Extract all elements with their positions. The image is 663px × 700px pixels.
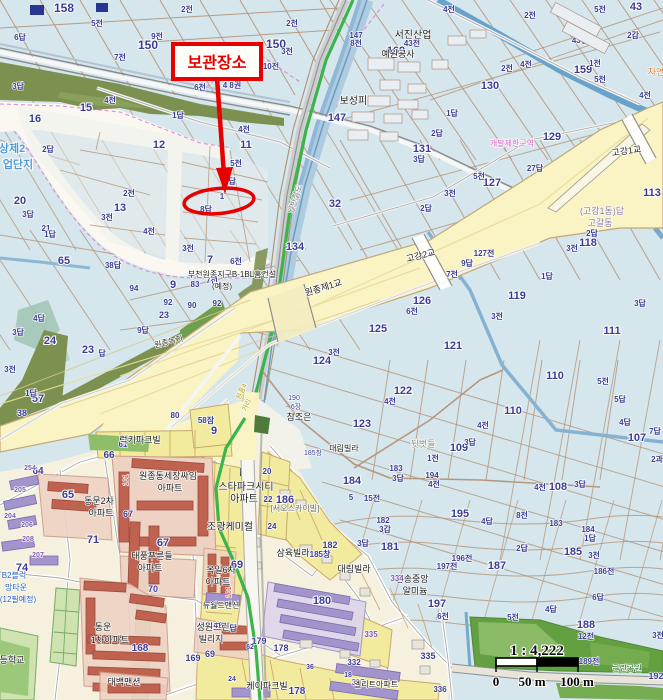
svg-text:4전: 4전 xyxy=(443,4,455,14)
svg-text:335: 335 xyxy=(364,630,378,639)
svg-text:36: 36 xyxy=(306,664,314,671)
svg-text:3답: 3답 xyxy=(357,538,369,548)
svg-text:3답: 3답 xyxy=(12,327,24,337)
svg-text:9답: 9답 xyxy=(137,325,149,335)
svg-text:108: 108 xyxy=(549,481,567,493)
svg-text:207: 207 xyxy=(32,552,44,559)
svg-text:182: 182 xyxy=(322,540,337,550)
svg-text:66: 66 xyxy=(103,450,115,461)
svg-text:197: 197 xyxy=(428,598,446,610)
svg-text:8전: 8전 xyxy=(516,510,528,520)
svg-text:101: 101 xyxy=(226,586,233,598)
svg-text:178: 178 xyxy=(289,686,306,697)
svg-text:3답: 3답 xyxy=(634,298,646,308)
svg-text:1답: 1답 xyxy=(446,108,458,118)
svg-text:보관장소: 보관장소 xyxy=(188,54,247,72)
svg-text:4답: 4답 xyxy=(545,604,557,614)
svg-text:1답: 1답 xyxy=(541,271,553,281)
svg-text:6장: 6장 xyxy=(291,402,302,411)
svg-text:6전: 6전 xyxy=(230,256,242,266)
svg-text:B2블럭: B2블럭 xyxy=(2,570,27,580)
svg-text:118: 118 xyxy=(579,237,597,249)
svg-text:5답: 5답 xyxy=(614,394,626,404)
svg-text:3전: 3전 xyxy=(566,243,578,253)
svg-text:67: 67 xyxy=(157,537,169,549)
svg-text:고갈동: 고갈동 xyxy=(588,218,613,228)
svg-text:111: 111 xyxy=(603,325,620,337)
svg-text:15전: 15전 xyxy=(364,493,380,503)
svg-text:147: 147 xyxy=(328,112,346,124)
svg-text:4전: 4전 xyxy=(238,124,250,134)
svg-text:0: 0 xyxy=(493,674,500,689)
svg-text:181: 181 xyxy=(381,541,399,553)
svg-text:빌리지: 빌리지 xyxy=(199,634,224,644)
svg-text:20: 20 xyxy=(14,195,26,207)
svg-text:194: 194 xyxy=(425,471,439,480)
svg-text:65: 65 xyxy=(58,255,70,267)
svg-text:169: 169 xyxy=(185,653,200,663)
svg-text:336: 336 xyxy=(433,685,447,694)
svg-text:케이파크빌: 케이파크빌 xyxy=(246,681,287,691)
svg-text:22: 22 xyxy=(264,495,273,504)
svg-text:183: 183 xyxy=(549,519,563,528)
svg-text:4전: 4전 xyxy=(384,396,396,406)
svg-text:184: 184 xyxy=(581,525,595,534)
svg-text:187: 187 xyxy=(488,560,506,572)
svg-text:254: 254 xyxy=(24,465,36,472)
svg-text:90: 90 xyxy=(188,301,197,310)
svg-text:5전: 5전 xyxy=(597,376,609,386)
svg-text:4전: 4전 xyxy=(639,90,651,100)
svg-text:근린공원: 근린공원 xyxy=(612,663,641,673)
svg-text:아파트: 아파트 xyxy=(138,563,163,573)
svg-text:100 m: 100 m xyxy=(560,674,594,689)
svg-text:4전: 4전 xyxy=(477,420,489,430)
svg-text:178: 178 xyxy=(273,643,288,653)
svg-text:2답: 2답 xyxy=(516,543,528,553)
svg-text:1전: 1전 xyxy=(589,58,601,68)
svg-text:상제2: 상제2 xyxy=(0,141,25,155)
svg-text:개발제한구역: 개발제한구역 xyxy=(490,138,534,148)
svg-text:태백맨션: 태백맨션 xyxy=(107,677,140,687)
svg-text:3답: 3답 xyxy=(392,473,404,483)
svg-text:130: 130 xyxy=(481,80,499,92)
svg-text:190: 190 xyxy=(288,395,300,402)
svg-text:334: 334 xyxy=(390,574,404,583)
svg-text:2과: 2과 xyxy=(651,454,663,464)
svg-text:참조은: 참조은 xyxy=(287,412,312,422)
svg-text:4 8권: 4 8권 xyxy=(223,80,241,90)
svg-text:4답: 4답 xyxy=(33,313,45,323)
svg-text:107: 107 xyxy=(628,432,646,444)
svg-text:(12필예정): (12필예정) xyxy=(0,594,36,604)
svg-text:대림빌라: 대림빌라 xyxy=(337,563,371,574)
svg-text:4답: 4답 xyxy=(619,417,631,427)
svg-text:1답: 1답 xyxy=(172,110,184,120)
svg-text:5전: 5전 xyxy=(507,612,519,622)
svg-text:15: 15 xyxy=(80,102,92,114)
svg-text:125: 125 xyxy=(369,323,387,335)
svg-text:4전: 4전 xyxy=(534,482,546,492)
svg-text:6답: 6답 xyxy=(14,32,26,42)
svg-text:답: 답 xyxy=(98,348,106,358)
svg-text:65: 65 xyxy=(62,489,74,501)
svg-text:205: 205 xyxy=(14,487,26,494)
svg-text:1 : 4,222: 1 : 4,222 xyxy=(510,643,564,659)
svg-text:7전: 7전 xyxy=(446,269,458,279)
svg-text:아파트: 아파트 xyxy=(206,577,231,587)
svg-text:131: 131 xyxy=(413,143,431,155)
svg-text:3전: 3전 xyxy=(4,364,16,374)
svg-text:3갑: 3갑 xyxy=(379,524,391,534)
svg-text:망타운: 망타운 xyxy=(5,582,27,592)
svg-text:5전: 5전 xyxy=(473,171,485,181)
svg-text:3전: 3전 xyxy=(101,212,113,222)
svg-text:13: 13 xyxy=(114,202,126,214)
svg-text:192: 192 xyxy=(648,671,663,681)
svg-text:4답: 4답 xyxy=(481,516,493,526)
svg-text:1차아파트: 1차아파트 xyxy=(91,634,129,645)
svg-text:9: 9 xyxy=(170,279,176,291)
svg-text:110: 110 xyxy=(546,370,564,382)
svg-text:7답: 7답 xyxy=(649,426,661,436)
svg-text:서진산업: 서진산업 xyxy=(395,28,432,41)
svg-text:24: 24 xyxy=(44,335,57,347)
svg-text:5전: 5전 xyxy=(594,4,606,14)
svg-text:2답: 2답 xyxy=(431,128,443,138)
svg-text:3전: 3전 xyxy=(444,188,456,198)
svg-text:업단지: 업단지 xyxy=(3,157,33,171)
svg-text:80: 80 xyxy=(171,411,180,420)
svg-text:20: 20 xyxy=(263,467,272,476)
svg-text:185창: 185창 xyxy=(310,549,331,559)
svg-text:23: 23 xyxy=(159,310,169,320)
svg-text:3답: 3답 xyxy=(22,209,34,219)
svg-text:27답: 27답 xyxy=(527,163,544,173)
svg-text:4전: 4전 xyxy=(143,226,155,236)
svg-text:12전: 12전 xyxy=(578,631,594,641)
svg-text:3전: 3전 xyxy=(652,630,663,640)
svg-text:94: 94 xyxy=(130,284,139,293)
svg-text:3전: 3전 xyxy=(588,550,600,560)
svg-text:9: 9 xyxy=(211,425,217,437)
svg-text:11: 11 xyxy=(240,139,252,151)
svg-text:9답: 9답 xyxy=(461,258,473,268)
svg-text:2답: 2답 xyxy=(586,228,598,238)
svg-text:123: 123 xyxy=(353,418,371,430)
svg-text:9전: 9전 xyxy=(151,31,163,41)
svg-text:168: 168 xyxy=(132,643,149,654)
svg-text:188: 188 xyxy=(577,619,595,631)
svg-text:2전: 2전 xyxy=(181,4,193,14)
svg-text:16: 16 xyxy=(29,113,41,125)
svg-text:4전: 4전 xyxy=(428,479,440,489)
svg-text:6답: 6답 xyxy=(592,592,604,602)
svg-text:아파트: 아파트 xyxy=(230,493,258,505)
svg-text:예원공사: 예원공사 xyxy=(381,49,415,59)
svg-text:1전: 1전 xyxy=(427,453,439,463)
svg-text:10전: 10전 xyxy=(263,61,279,71)
svg-text:(고강1동)답: (고강1동)답 xyxy=(580,205,624,216)
svg-text:92: 92 xyxy=(164,298,173,307)
svg-text:자연: 자연 xyxy=(648,67,663,77)
svg-text:대림빌라: 대림빌라 xyxy=(329,443,359,453)
svg-text:동문2차: 동문2차 xyxy=(84,495,115,506)
svg-text:122: 122 xyxy=(394,385,412,397)
svg-text:38답: 38답 xyxy=(105,260,122,270)
svg-text:185: 185 xyxy=(564,546,582,558)
svg-text:4전: 4전 xyxy=(520,59,532,69)
svg-text:183: 183 xyxy=(389,464,403,473)
svg-text:성원그린: 성원그린 xyxy=(196,622,229,632)
svg-text:58잠: 58잠 xyxy=(198,415,215,425)
svg-text:195: 195 xyxy=(451,508,469,520)
svg-text:186전: 186전 xyxy=(594,566,615,576)
svg-text:71: 71 xyxy=(87,534,99,546)
svg-text:6전: 6전 xyxy=(406,306,418,316)
svg-text:129: 129 xyxy=(543,131,561,143)
svg-text:92: 92 xyxy=(213,299,222,308)
svg-text:134: 134 xyxy=(286,241,305,253)
svg-text:3답: 3답 xyxy=(464,437,476,447)
svg-text:50 m: 50 m xyxy=(518,674,545,689)
svg-text:뉴월드맨션: 뉴월드맨션 xyxy=(203,600,240,610)
svg-text:23: 23 xyxy=(82,344,94,356)
svg-text:127: 127 xyxy=(483,177,501,189)
svg-text:127전: 127전 xyxy=(474,248,495,258)
svg-text:대풍푸른들: 대풍푸른들 xyxy=(131,551,172,561)
svg-text:2전: 2전 xyxy=(286,18,298,28)
svg-text:332: 332 xyxy=(347,658,361,667)
svg-text:아파트: 아파트 xyxy=(158,483,183,493)
svg-text:2답: 2답 xyxy=(420,203,432,213)
svg-text:119: 119 xyxy=(508,290,526,302)
svg-text:5전: 5전 xyxy=(230,158,242,168)
svg-text:3답: 3답 xyxy=(574,479,586,489)
svg-text:67: 67 xyxy=(123,509,133,519)
svg-text:32: 32 xyxy=(329,198,341,210)
svg-text:185창: 185창 xyxy=(304,449,323,457)
svg-text:5전: 5전 xyxy=(594,74,606,84)
svg-text:1답: 1답 xyxy=(584,533,596,543)
svg-text:2전: 2전 xyxy=(123,188,135,198)
svg-text:126: 126 xyxy=(413,295,431,307)
svg-text:2갑: 2갑 xyxy=(627,30,639,40)
svg-text:110: 110 xyxy=(504,405,522,417)
svg-text:5전: 5전 xyxy=(91,18,103,28)
svg-text:엘리트아파트: 엘리트아파트 xyxy=(354,679,398,689)
svg-text:동운: 동운 xyxy=(95,622,112,632)
svg-text:뒷벗들: 뒷벗들 xyxy=(411,438,436,449)
svg-text:(예정): (예정) xyxy=(212,281,232,291)
svg-text:[서오스카이빌]: [서오스카이빌] xyxy=(271,503,320,513)
svg-text:원종동세장싸임: 원종동세장싸임 xyxy=(139,470,197,481)
svg-text:5: 5 xyxy=(349,493,354,502)
svg-text:83: 83 xyxy=(191,280,200,289)
svg-text:스타파크시티: 스타파크시티 xyxy=(218,481,273,493)
svg-text:4전: 4전 xyxy=(104,95,116,105)
svg-text:62: 62 xyxy=(246,644,254,651)
svg-text:6전: 6전 xyxy=(194,82,206,92)
svg-text:197전: 197전 xyxy=(437,561,458,571)
svg-text:7전: 7전 xyxy=(114,52,126,62)
svg-text:3전: 3전 xyxy=(182,243,194,253)
svg-text:204: 204 xyxy=(4,513,16,520)
svg-text:1: 1 xyxy=(220,192,225,201)
svg-text:24: 24 xyxy=(268,522,277,531)
svg-text:180: 180 xyxy=(313,595,331,607)
svg-text:335: 335 xyxy=(420,651,435,661)
svg-text:38: 38 xyxy=(17,408,27,418)
svg-text:12: 12 xyxy=(153,139,165,151)
svg-text:206: 206 xyxy=(21,522,33,529)
svg-text:조광케미컬: 조광케미컬 xyxy=(207,520,253,533)
svg-text:등학교: 등학교 xyxy=(0,655,24,665)
svg-text:69: 69 xyxy=(205,649,215,659)
svg-text:3전: 3전 xyxy=(281,46,293,56)
svg-text:옥일6차: 옥일6차 xyxy=(206,564,237,575)
svg-text:189전: 189전 xyxy=(579,656,600,666)
svg-text:6전: 6전 xyxy=(437,611,449,621)
svg-text:158: 158 xyxy=(54,1,74,15)
svg-text:1답: 1답 xyxy=(44,229,56,239)
svg-text:알미늄: 알미늄 xyxy=(403,586,428,596)
svg-text:208: 208 xyxy=(22,536,34,543)
svg-text:121: 121 xyxy=(444,340,462,352)
svg-text:43: 43 xyxy=(630,1,642,13)
svg-text:3답: 3답 xyxy=(12,81,24,91)
svg-text:8전: 8전 xyxy=(350,38,362,48)
svg-text:101: 101 xyxy=(123,474,130,486)
svg-text:3전: 3전 xyxy=(328,347,340,357)
svg-text:3전: 3전 xyxy=(491,311,503,321)
svg-text:부천원종지구B-1BL홈건설: 부천원종지구B-1BL홈건설 xyxy=(188,269,276,279)
svg-text:2전: 2전 xyxy=(524,10,536,20)
svg-text:24: 24 xyxy=(228,676,236,683)
svg-text:1답: 1답 xyxy=(25,388,37,398)
svg-text:7: 7 xyxy=(207,254,213,266)
svg-text:아파트: 아파트 xyxy=(89,508,114,518)
svg-text:184: 184 xyxy=(343,475,362,487)
svg-text:182: 182 xyxy=(376,516,390,525)
svg-text:3답: 3답 xyxy=(413,154,425,164)
svg-text:럭키파크빌: 럭키파크빌 xyxy=(119,434,160,445)
svg-text:삼육빌라: 삼육빌라 xyxy=(276,548,310,558)
svg-text:2전: 2전 xyxy=(501,63,513,73)
svg-text:2답: 2답 xyxy=(42,144,54,154)
svg-text:70: 70 xyxy=(148,584,158,594)
svg-text:113: 113 xyxy=(643,187,661,199)
